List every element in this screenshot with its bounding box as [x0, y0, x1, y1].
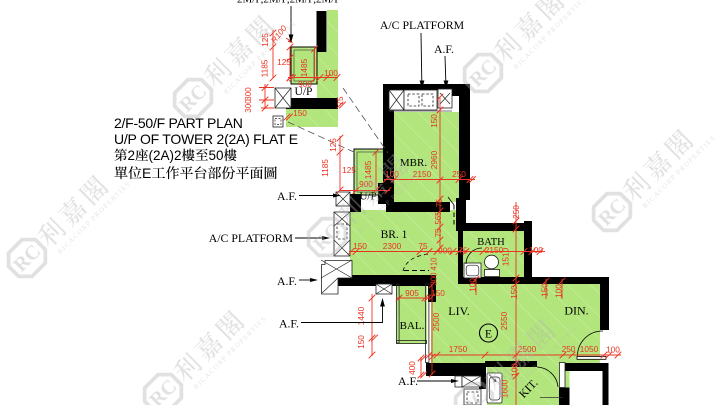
svg-text:100: 100 — [468, 278, 478, 292]
svg-text:E: E — [142, 165, 151, 181]
svg-text:A.F.: A.F. — [398, 374, 418, 388]
svg-text:100: 100 — [606, 345, 620, 355]
svg-text:150: 150 — [429, 114, 439, 128]
svg-text:50: 50 — [209, 148, 224, 163]
svg-text:A.F.: A.F. — [277, 274, 297, 288]
svg-text:250: 250 — [452, 169, 466, 179]
svg-text:150: 150 — [509, 285, 519, 299]
svg-text:75: 75 — [434, 228, 443, 237]
svg-text:300: 300 — [244, 87, 253, 101]
svg-text:A/C PLATFORM: A/C PLATFORM — [380, 18, 465, 32]
svg-text:BAL.: BAL. — [400, 320, 425, 332]
svg-text:150: 150 — [353, 241, 367, 251]
svg-text:150: 150 — [540, 283, 550, 297]
svg-text:1050: 1050 — [580, 344, 599, 354]
svg-text:400: 400 — [407, 361, 417, 375]
svg-text:125: 125 — [328, 138, 338, 152]
svg-text:1485: 1485 — [299, 58, 309, 77]
svg-text:A.F.: A.F. — [277, 189, 297, 203]
svg-text:BATH: BATH — [477, 237, 505, 248]
svg-text:900: 900 — [438, 246, 452, 256]
svg-text:1185: 1185 — [320, 159, 330, 177]
svg-text:2550: 2550 — [499, 311, 509, 330]
svg-text:A.F.: A.F. — [279, 317, 299, 331]
svg-text:75: 75 — [435, 198, 444, 207]
svg-text:1510: 1510 — [501, 247, 511, 266]
svg-text:150: 150 — [431, 288, 445, 298]
svg-text:250: 250 — [562, 344, 576, 354]
svg-text:100: 100 — [324, 68, 338, 78]
svg-text:905: 905 — [405, 288, 419, 298]
svg-text:U/P OF TOWER 2(2A) FLAT E: U/P OF TOWER 2(2A) FLAT E — [114, 131, 298, 147]
svg-text:100: 100 — [554, 284, 564, 298]
svg-text:A/C PLATFORM: A/C PLATFORM — [209, 231, 294, 245]
svg-text:150: 150 — [293, 108, 307, 118]
svg-text:125: 125 — [277, 57, 291, 67]
svg-text:100: 100 — [529, 245, 543, 255]
svg-text:LIV.: LIV. — [448, 304, 469, 318]
svg-text:U/P: U/P — [295, 86, 313, 98]
svg-text:150: 150 — [356, 335, 366, 349]
svg-text:(2A)2: (2A)2 — [149, 148, 182, 163]
svg-text:250: 250 — [511, 205, 521, 219]
svg-text:75: 75 — [418, 241, 428, 251]
svg-text:125: 125 — [342, 165, 356, 175]
svg-text:2M/F,2M/F,2M/F,2M/F: 2M/F,2M/F,2M/F,2M/F — [237, 0, 340, 6]
svg-text:565: 565 — [434, 211, 443, 225]
svg-text:1750: 1750 — [449, 344, 468, 354]
svg-text:BR. 1: BR. 1 — [381, 229, 408, 241]
svg-text:2: 2 — [128, 148, 136, 163]
svg-text:A.F.: A.F. — [434, 42, 454, 56]
svg-text:75: 75 — [458, 246, 468, 256]
svg-text:E: E — [485, 327, 492, 341]
svg-text:2300: 2300 — [383, 241, 402, 251]
svg-text:2960: 2960 — [429, 150, 439, 169]
svg-text:2/F-50/F PART PLAN: 2/F-50/F PART PLAN — [114, 115, 243, 131]
svg-text:DIN.: DIN. — [564, 304, 588, 318]
svg-text:2500: 2500 — [431, 312, 441, 331]
svg-text:410: 410 — [430, 257, 439, 271]
svg-text:300: 300 — [244, 99, 253, 113]
